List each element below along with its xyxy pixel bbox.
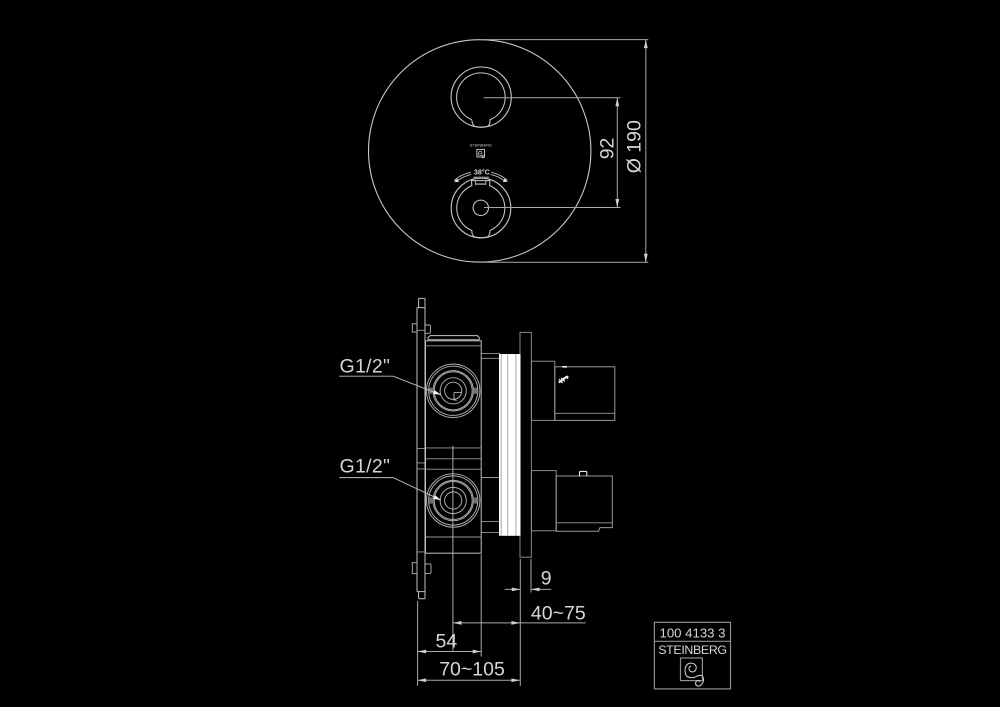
svg-text:Ø 190: Ø 190 <box>624 120 646 173</box>
svg-text:92: 92 <box>597 138 619 160</box>
svg-text:STEINBERG: STEINBERG <box>470 144 492 148</box>
svg-text:54: 54 <box>436 631 458 653</box>
svg-text:G1/2": G1/2" <box>340 456 391 478</box>
svg-text:9: 9 <box>541 568 552 590</box>
svg-text:STEINBERG: STEINBERG <box>658 643 726 657</box>
svg-text:38°C: 38°C <box>474 168 490 177</box>
svg-text:40~75: 40~75 <box>531 602 586 624</box>
svg-text:100 4133 3: 100 4133 3 <box>659 626 725 641</box>
svg-text:70~105: 70~105 <box>439 659 505 681</box>
svg-text:G1/2": G1/2" <box>340 355 391 377</box>
